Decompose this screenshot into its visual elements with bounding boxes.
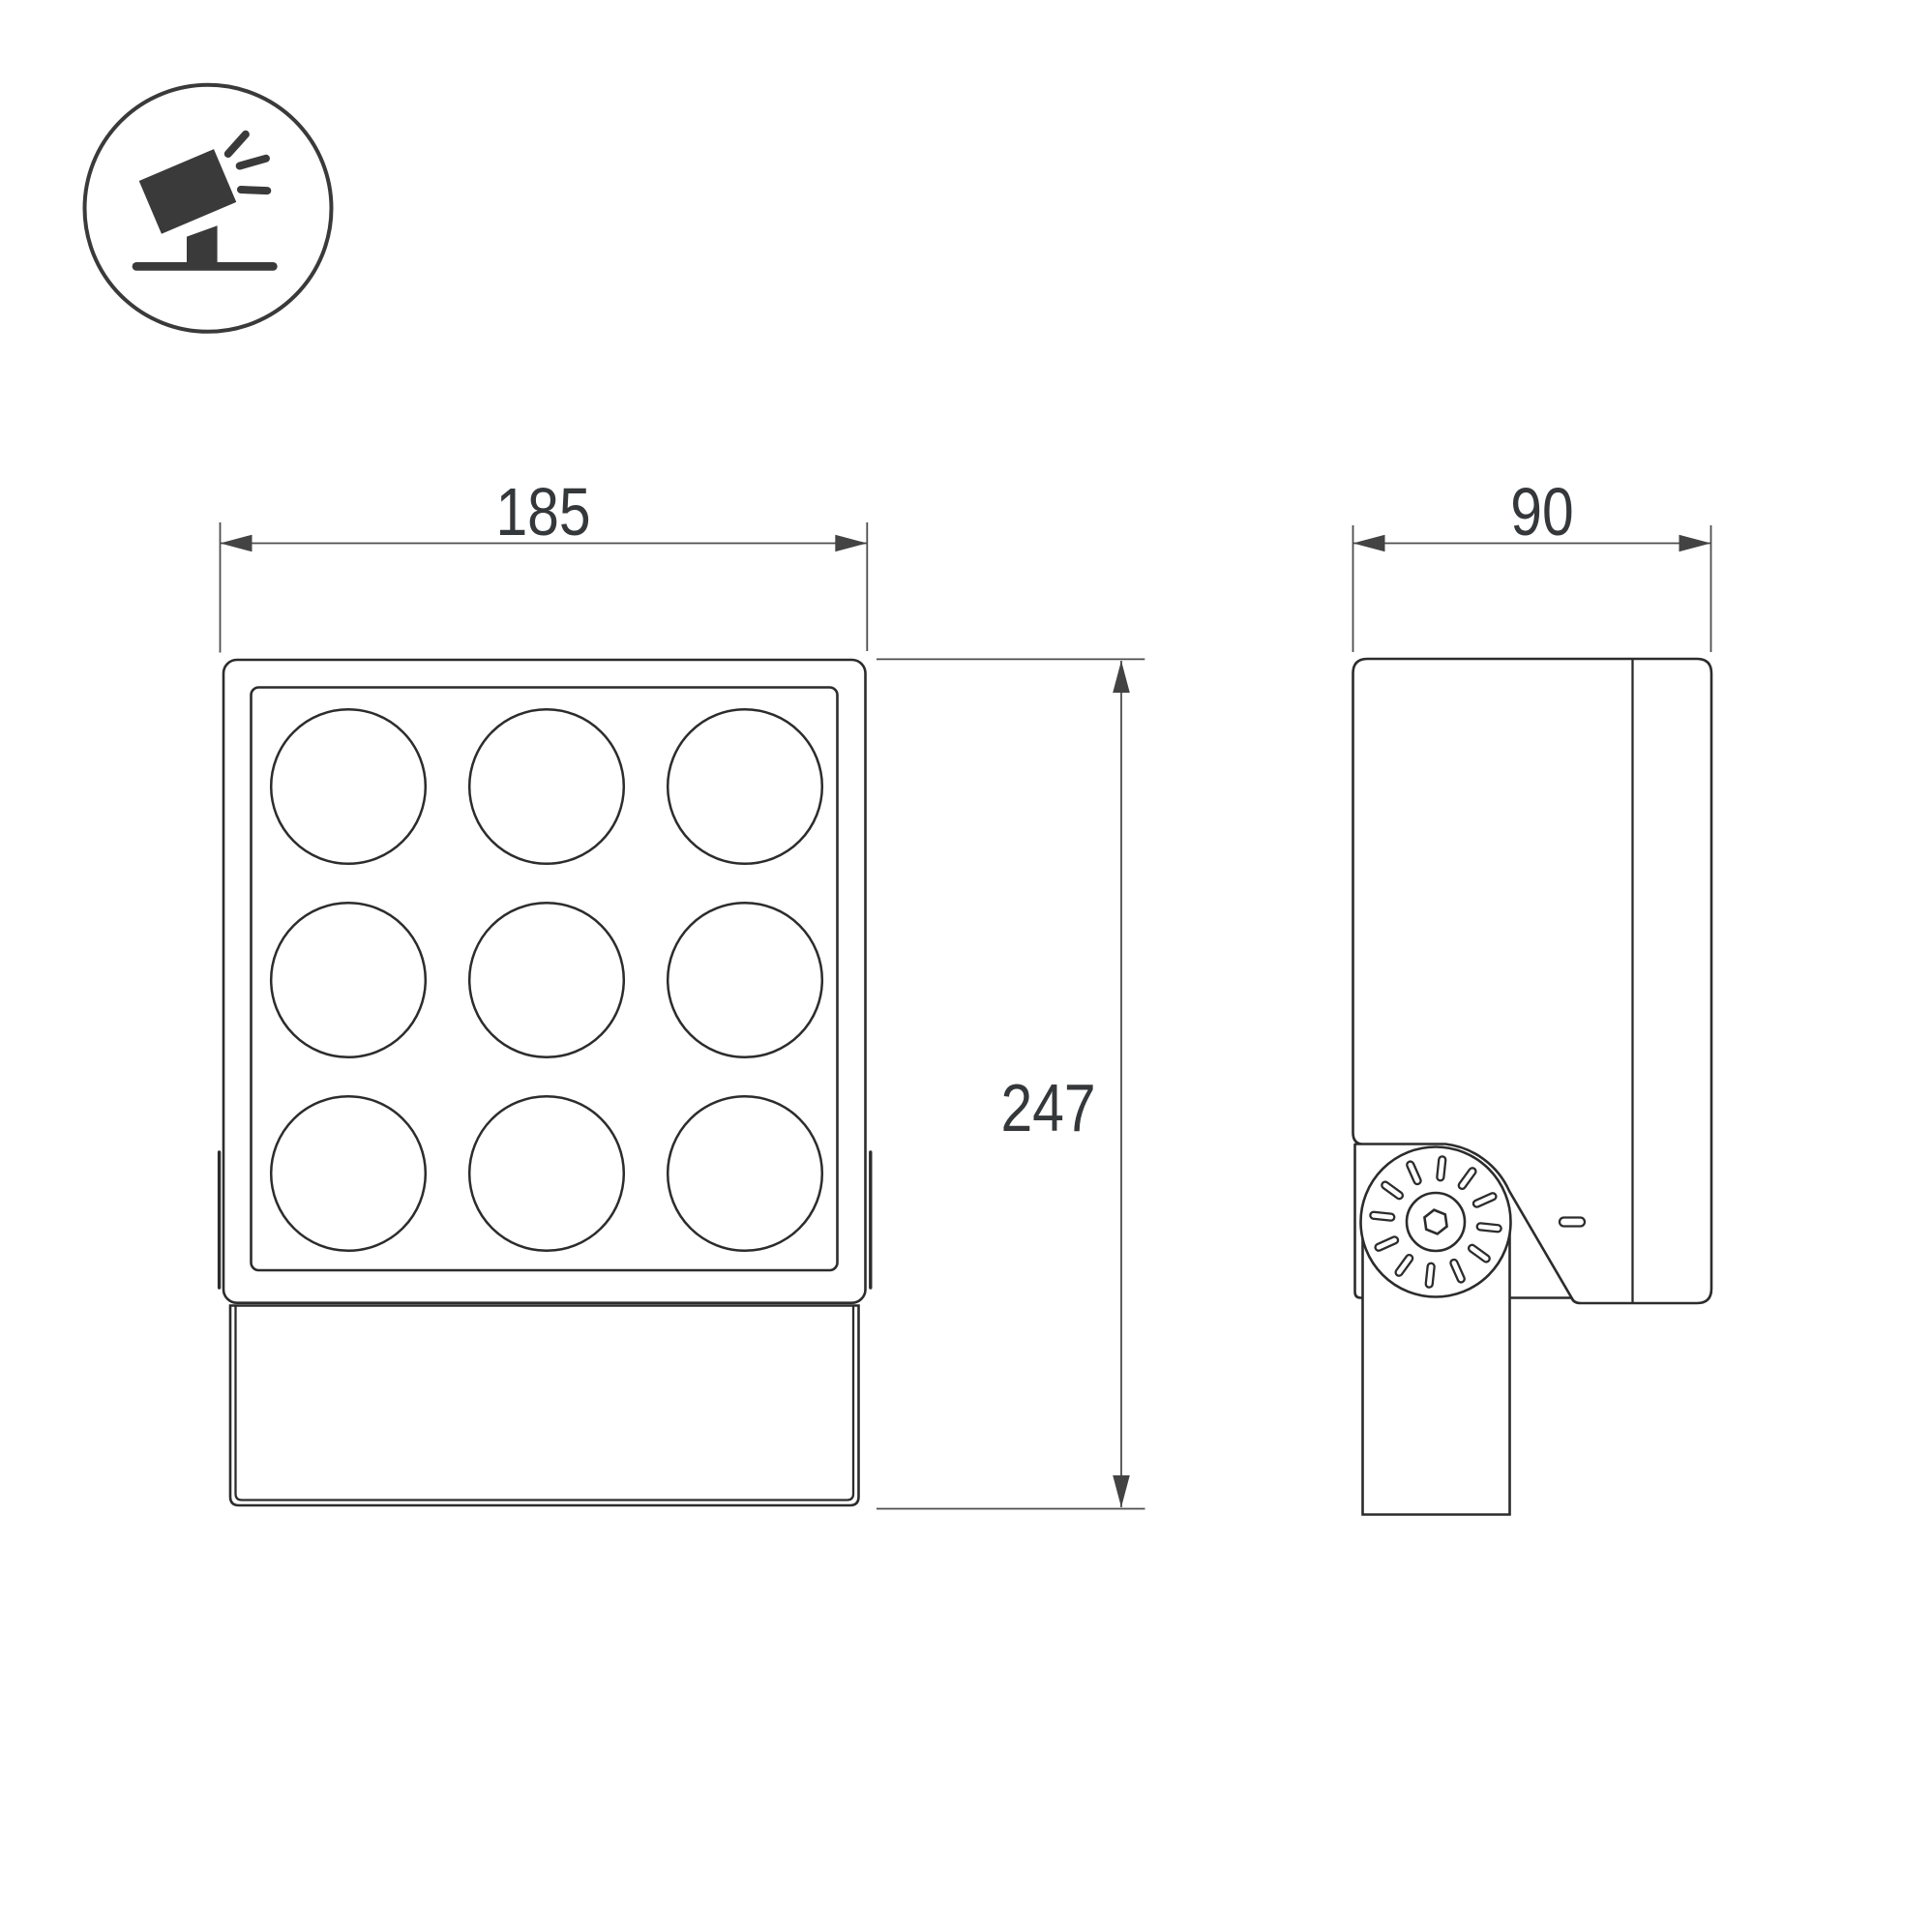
svg-text:247: 247	[1000, 1069, 1095, 1145]
svg-text:90: 90	[1510, 473, 1573, 550]
svg-text:185: 185	[495, 473, 590, 550]
